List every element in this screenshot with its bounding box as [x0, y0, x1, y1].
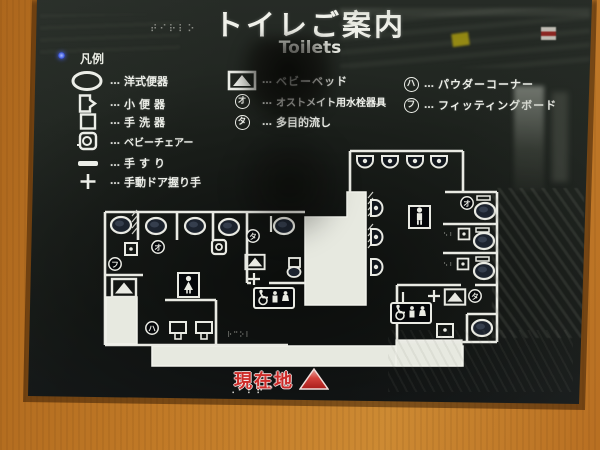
legend-label: 多目的流し — [276, 114, 331, 130]
toilet-icon — [185, 218, 205, 234]
svg-text:ハ: ハ — [148, 324, 156, 333]
toilet-icon — [475, 203, 495, 219]
baby-bed-icon — [226, 70, 258, 91]
mens-entrance-area — [396, 340, 462, 366]
ostomate-marker: オ — [461, 197, 473, 209]
sign-subtitle: Toilets — [170, 38, 450, 58]
legend-row-baby-bed: … ベビーベッド — [226, 70, 348, 91]
legend-dots: … — [424, 79, 434, 90]
legend-label: 手洗器 — [124, 114, 169, 130]
circled-letter-icon: ハ — [402, 77, 420, 92]
urinal-icon — [371, 200, 383, 216]
door-hatch — [132, 210, 137, 234]
braille-dots: ⠢⠆ — [443, 260, 455, 268]
led-indicator — [58, 52, 65, 59]
drain-dot — [443, 328, 447, 332]
legend-dots: … — [262, 117, 272, 128]
legend-row-urinal: … 小便器 — [70, 93, 169, 114]
womens-entrance-door — [106, 297, 137, 344]
accessible-toilet-sign-icon — [391, 303, 431, 323]
sink-icon — [170, 322, 186, 339]
shelf-icon — [477, 196, 490, 200]
accessible-toilet-sign-icon — [254, 288, 294, 308]
legend-label: 小便器 — [124, 96, 169, 112]
legend-dots: … — [110, 116, 120, 127]
hand-basin-icon — [458, 259, 469, 270]
powder-corner-marker: ハ — [146, 322, 158, 334]
toilet-icon — [111, 217, 131, 233]
legend-row-western-toilet: … 洋式便器 — [70, 70, 168, 92]
red-sign-reflection — [541, 27, 556, 40]
legend-label: パウダーコーナー — [438, 76, 534, 92]
legend-dots: … — [262, 96, 272, 107]
urinal-icon — [357, 156, 373, 168]
legend-dots: … — [262, 75, 272, 86]
ostomate-marker: オ — [152, 241, 164, 253]
floor-plan: オ フ ハ ⠗⠉⠕⠇ タ — [85, 140, 505, 372]
toilet-icon — [274, 218, 294, 234]
shelf-icon — [476, 257, 489, 261]
legend-row-multipurpose-sink: タ … 多目的流し — [226, 114, 331, 130]
hand-basin-icon — [125, 243, 137, 255]
western-toilet-icon — [70, 70, 106, 92]
braille-dots: ⠗⠉⠕⠇ — [227, 331, 252, 339]
shelf-icon — [476, 228, 489, 232]
legend-label: フィッティングボード — [438, 97, 557, 113]
legend-dots: … — [110, 98, 120, 109]
current-location-marker-icon — [299, 367, 329, 392]
legend-dots: … — [110, 76, 120, 87]
baby-chair-icon — [212, 240, 226, 254]
hand-basin-icon — [459, 229, 470, 240]
urinal-icon — [431, 156, 447, 168]
multipurpose-sink-marker: タ — [469, 290, 481, 302]
legend-dots: … — [424, 100, 434, 111]
hand-basin-icon — [70, 112, 106, 131]
legend-row-ostomate: オ … オストメイト用水栓器具 — [226, 94, 386, 109]
svg-text:タ: タ — [249, 231, 257, 241]
urinal-icon — [371, 229, 383, 245]
toilet-icon — [146, 218, 166, 234]
svg-text:オ: オ — [463, 199, 471, 208]
svg-text:フ: フ — [111, 260, 119, 269]
legend-header: 凡例 — [80, 50, 104, 67]
urinal-icon — [382, 156, 398, 168]
multipurpose-sink-marker: タ — [247, 230, 259, 242]
legend-row-hand-basin: … 手洗器 — [70, 112, 169, 131]
legend-label: オストメイト用水栓器具 — [276, 94, 386, 109]
sink-icon — [196, 322, 212, 339]
svg-text:タ: タ — [471, 291, 479, 301]
door-handle-icon — [428, 290, 440, 302]
legend-row-powder-corner: ハ … パウダーコーナー — [402, 76, 534, 92]
urinal-icon — [407, 156, 423, 168]
floor-tile-reflection — [492, 188, 584, 338]
toilet-guide-sign: ⠞⠊⠗⠇⠕ トイレご案内 Toilets 凡例 … 洋式便器 … 小便器 … 手… — [0, 0, 600, 450]
toilet-icon — [219, 219, 239, 235]
fitting-board-marker: フ — [109, 258, 121, 270]
braille-dots: ⠠⠃⠇⠗⠉ — [228, 386, 275, 397]
urinal-icon — [371, 259, 383, 275]
toilet-tank-icon — [289, 258, 300, 267]
legend-row-fitting-board: フ … フィッティングボード — [402, 97, 557, 113]
toilet-icon — [474, 233, 494, 249]
baby-bed-icon — [112, 279, 136, 297]
baby-bed-icon — [445, 289, 465, 304]
toilet-icon — [288, 267, 301, 277]
svg-text:オ: オ — [154, 243, 162, 252]
toilet-icon — [474, 263, 494, 279]
circled-letter-icon: オ — [226, 94, 258, 109]
legend-label: ベビーベッド — [276, 73, 348, 89]
legend-label: 洋式便器 — [124, 73, 168, 89]
yellow-sign-reflection — [451, 32, 470, 47]
urinal-icon — [70, 93, 106, 114]
circled-letter-icon: タ — [226, 115, 258, 130]
braille-dots: ⠢⠆ — [443, 230, 455, 238]
photo-stage: ⠞⠊⠗⠇⠕ トイレご案内 Toilets 凡例 … 洋式便器 … 小便器 … 手… — [0, 0, 600, 450]
lobby-area — [305, 192, 366, 305]
circled-letter-icon: フ — [402, 98, 420, 113]
toilet-icon — [472, 320, 492, 336]
